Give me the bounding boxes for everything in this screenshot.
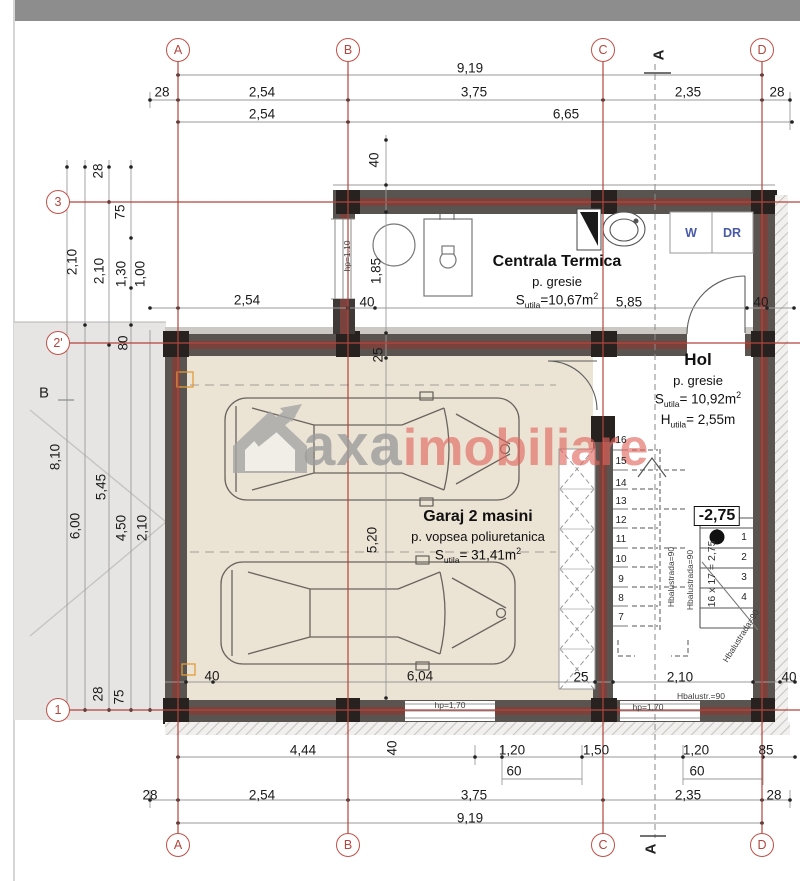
plan-label: A — [166, 38, 190, 62]
plan-label: 3,75 — [461, 85, 487, 99]
plan-label: 1,85 — [369, 258, 383, 284]
plan-label: 8 — [618, 594, 624, 604]
plan-label: 3,75 — [461, 788, 487, 802]
plan-label: 2,54 — [249, 788, 275, 802]
plan-label: 16 x 17 = 2,75 — [707, 541, 718, 608]
plan-label: 6,04 — [407, 669, 433, 683]
plan-label: 15 — [615, 457, 626, 467]
plan-label: 40 — [359, 295, 374, 309]
plan-label: A — [644, 844, 659, 855]
plan-label: 1,00 — [133, 261, 147, 287]
plan-label: 2' — [46, 331, 70, 355]
plan-label: 2,54 — [234, 293, 260, 307]
plan-label: 2,10 — [667, 670, 693, 684]
plan-label: 28 — [769, 85, 784, 99]
plan-label: B — [336, 833, 360, 857]
plan-label: 1,50 — [583, 743, 609, 757]
floor-plan-page: axa imobiliare Centrala Termica p. gresi… — [0, 0, 800, 881]
electric-panel — [577, 209, 601, 250]
plan-label: 28 — [91, 686, 105, 701]
plan-label: 2,10 — [135, 515, 149, 541]
plan-label: Hbalustrada=90 — [667, 547, 676, 607]
room-name: Centrala Termica — [457, 251, 657, 273]
floor-plan-drawing — [0, 0, 800, 881]
room-label-garaj: Garaj 2 masini p. vopsea poliuretanica S… — [348, 506, 608, 567]
plan-label: 40 — [367, 152, 381, 167]
room-area: Sutila= 31,41m2 — [348, 545, 608, 567]
plan-label: 9,19 — [457, 811, 483, 825]
sink — [603, 212, 645, 246]
plan-label: 25 — [573, 670, 588, 684]
plan-label: 9 — [618, 575, 624, 585]
plan-label: 1,30 — [114, 261, 128, 287]
plan-label: 9,19 — [457, 61, 483, 75]
plan-label: 14 — [615, 479, 626, 489]
room-finish: p. gresie — [457, 273, 657, 291]
plan-label: B — [39, 386, 49, 401]
plan-label: 16 — [615, 436, 626, 446]
room-finish: p. gresie — [628, 372, 768, 390]
plan-label: 3 — [741, 573, 747, 583]
room-height: Hutila= 2,55m — [628, 411, 768, 431]
room-label-hol: Hol p. gresie Sutila= 10,92m2 Hutila= 2,… — [628, 349, 768, 431]
plan-label: D — [750, 38, 774, 62]
plan-label: 4,50 — [114, 515, 128, 541]
plan-label: 60 — [506, 764, 521, 778]
plan-label: 25 — [371, 347, 385, 362]
plan-label: 12 — [615, 516, 626, 526]
top-gray-bar — [15, 0, 800, 21]
plan-label: B — [336, 38, 360, 62]
plan-label: C — [591, 833, 615, 857]
plan-label: D — [750, 833, 774, 857]
plan-label: -2,75 — [694, 506, 740, 526]
plan-label: 2,10 — [92, 258, 106, 284]
plan-label: 2 — [741, 553, 747, 563]
plan-label: C — [591, 38, 615, 62]
room-finish: p. vopsea poliuretanica — [348, 528, 608, 546]
room-name: Hol — [628, 349, 768, 372]
plan-label: 28 — [154, 85, 169, 99]
room-name: Garaj 2 masini — [348, 506, 608, 528]
plan-label: W — [685, 227, 697, 240]
plan-label: Hbalustrada=90 — [686, 550, 695, 610]
plan-label: 28 — [766, 788, 781, 802]
plan-label: 10 — [615, 555, 626, 565]
plan-label: 11 — [616, 535, 626, 545]
plan-label: 2,35 — [675, 788, 701, 802]
plan-label: 13 — [615, 497, 626, 507]
plan-label: 40 — [781, 670, 796, 684]
plan-label: 6,65 — [553, 107, 579, 121]
plan-label: 60 — [689, 764, 704, 778]
plan-label: 4 — [741, 593, 747, 603]
plan-label: 5,20 — [365, 527, 379, 553]
plan-label: 2,54 — [249, 85, 275, 99]
plan-label: 8,10 — [48, 444, 62, 470]
plan-label: 40 — [753, 295, 768, 309]
shaft — [559, 449, 595, 689]
plan-label: 4,44 — [290, 743, 316, 757]
plan-label: 80 — [116, 335, 130, 350]
plan-label: 5,85 — [616, 295, 642, 309]
plan-label: 40 — [385, 740, 399, 755]
plan-label: hp=1,70 — [633, 703, 664, 712]
plan-label: 1 — [46, 698, 70, 722]
plan-label: DR — [723, 227, 741, 240]
plan-label: 2,54 — [249, 107, 275, 121]
plan-label: hp=1.10 — [343, 241, 352, 272]
room-area: Sutila= 10,92m2 — [628, 389, 768, 411]
plan-label: 40 — [204, 669, 219, 683]
plan-label: 3 — [46, 190, 70, 214]
plan-label: 2,10 — [65, 249, 79, 275]
plan-label: 7 — [618, 613, 624, 623]
plan-label: 28 — [91, 163, 105, 178]
plan-label: 75 — [112, 689, 126, 704]
plan-label: 75 — [113, 204, 127, 219]
plan-label: A — [652, 50, 667, 61]
plan-label: 5,45 — [94, 474, 108, 500]
plan-label: 85 — [758, 743, 773, 757]
plan-label: hp=1,70 — [435, 701, 466, 710]
plan-label: Hbalustr.=90 — [677, 692, 725, 701]
plan-label: A — [166, 833, 190, 857]
plan-label: 28 — [142, 788, 157, 802]
plan-label: 2,35 — [675, 85, 701, 99]
plan-label: 6,00 — [68, 513, 82, 539]
plan-label: 1 — [741, 533, 747, 543]
plan-label: 1,20 — [499, 743, 525, 757]
plan-label: 1,20 — [683, 743, 709, 757]
